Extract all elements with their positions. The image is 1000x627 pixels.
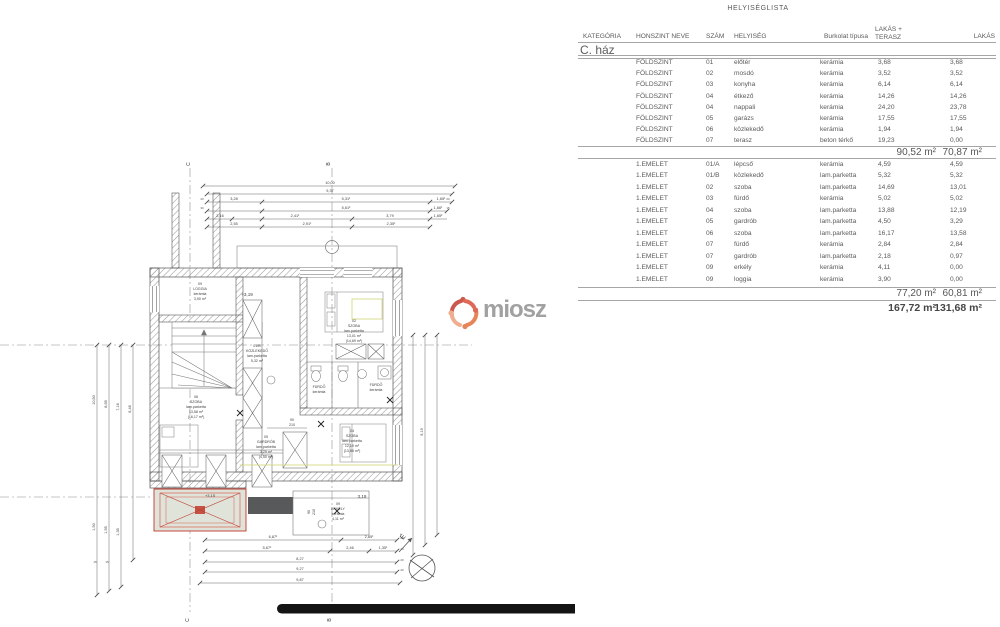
svg-text:10,00: 10,00	[325, 181, 335, 185]
table-cell: lam.parketta	[820, 253, 856, 260]
table-cell: kerámia	[820, 81, 843, 88]
svg-text:1,65²: 1,65²	[434, 214, 443, 218]
table-cell: gardrób	[734, 253, 757, 260]
loggia-highlight	[154, 489, 246, 531]
table-cell: 03	[706, 81, 713, 88]
table-cell: loggia	[734, 276, 752, 283]
svg-text:12,19 m²: 12,19 m²	[345, 444, 360, 448]
table-cell: 01/A	[706, 161, 720, 168]
header-lakas-terasz: LAKÁS + TERASZ	[875, 26, 915, 41]
table-cell: 17,55	[878, 115, 895, 122]
table-cell: lam.parketta	[820, 207, 856, 214]
table-cell: 06	[706, 126, 713, 133]
table-row: FÖLDSZINT05garázskerámia17,5517,55	[578, 114, 996, 125]
table-row: 1.EMELET05gardróblam.parketta4,503,29	[578, 217, 996, 229]
table-cell: lam.parketta	[820, 218, 856, 225]
table-cell: erkély	[734, 264, 752, 271]
svg-text:6,46: 6,46	[128, 405, 132, 412]
grid-label-b-bottom: B	[327, 618, 333, 622]
table-cell: 3,68	[950, 59, 963, 66]
svg-text:7,16: 7,16	[116, 403, 120, 410]
table-cell: előtér	[734, 59, 751, 66]
table-cell: 04	[706, 93, 713, 100]
table-row: FÖLDSZINT03konyhakerámia6,146,14	[578, 80, 996, 91]
foldszint-subtotal: 90,52 m² 70,87 m²	[578, 147, 996, 159]
table-cell: 1.EMELET	[636, 195, 668, 202]
table-cell: kerámia	[820, 241, 843, 248]
table-row: 1.EMELET02szobalam.parketta14,6913,01	[578, 183, 996, 195]
table-cell: kerámia	[820, 104, 843, 111]
room-label-szoba-02: 02 SZOBA lam.parketta 13,01 m² (14,69 m²…	[344, 319, 364, 343]
table-cell: 1.EMELET	[636, 264, 668, 271]
table-cell: lépcső	[734, 161, 753, 168]
table-cell: FÖLDSZINT	[636, 126, 673, 133]
header-kategoria: KATEGÓRIA	[583, 33, 621, 40]
table-cell: 4,11	[878, 264, 890, 271]
table-cell: közlekedő	[734, 126, 764, 133]
table-cell: 3,29	[950, 218, 963, 225]
svg-text:20: 20	[200, 197, 204, 201]
table-cell: FÖLDSZINT	[636, 81, 673, 88]
table-row: FÖLDSZINT02mosdókerámia3,523,52	[578, 69, 996, 80]
table-cell: 0,00	[950, 276, 963, 283]
svg-text:9,37: 9,37	[326, 189, 333, 193]
table-cell: 3,52	[878, 70, 891, 77]
table-cell: 01	[706, 59, 713, 66]
table-cell: 12,19	[950, 207, 967, 214]
svg-text:8,65: 8,65	[104, 400, 108, 407]
svg-text:1,65¹: 1,65¹	[437, 197, 446, 201]
svg-text:10,50: 10,50	[92, 395, 96, 405]
rule	[578, 55, 996, 56]
svg-text:lam.parketta: lam.parketta	[247, 354, 267, 358]
roof-outline	[237, 246, 397, 268]
header-lakas: LAKÁS	[952, 33, 995, 40]
north-label: É	[398, 532, 408, 542]
svg-text:04: 04	[350, 429, 354, 433]
svg-text:15: 15	[93, 560, 97, 564]
table-cell: szoba	[734, 207, 752, 214]
table-cell: gardrób	[734, 218, 757, 225]
grid-label-c-bottom: C	[185, 618, 191, 622]
svg-text:9,27: 9,27	[296, 567, 303, 571]
table-cell: 2,18	[878, 253, 891, 260]
table-cell: 3,52	[950, 70, 963, 77]
table-cell: 0,00	[950, 137, 963, 144]
level-mark-2: +3,15	[205, 493, 216, 498]
room-list-table: HELYISÉGLISTA KATEGÓRIA HONSZINT NEVE SZ…	[578, 0, 996, 627]
svg-text:20: 20	[400, 558, 404, 562]
table-cell: 14,69	[878, 184, 895, 191]
table-cell: FÖLDSZINT	[636, 70, 673, 77]
table-cell: kerámia	[820, 276, 843, 283]
table-cell: FÖLDSZINT	[636, 104, 673, 111]
svg-text:(4,50 m²): (4,50 m²)	[259, 455, 274, 459]
table-cell: 4,50	[878, 218, 891, 225]
table-cell: kerámia	[820, 126, 843, 133]
svg-text:3,28: 3,28	[230, 197, 237, 201]
subtotal-lakas-terasz: 90,52 m²	[818, 147, 936, 158]
table-row: 1.EMELET09erkélykerámia4,110,00	[578, 263, 996, 275]
miosz-logo-text: miosz	[483, 296, 546, 324]
table-row: 1.EMELET04szobalam.parketta13,8812,19	[578, 206, 996, 218]
table-cell: kerámia	[820, 70, 843, 77]
room-label-furdo-03: FÜRDŐ kerámia	[313, 384, 326, 394]
svg-text:(13,88 m²): (13,88 m²)	[344, 449, 361, 453]
table-cell: 04	[706, 207, 713, 214]
table-cell: 05	[706, 218, 713, 225]
room-label-szoba-04: 04 SZOBA lam.parketta 12,19 m² (13,88 m²…	[342, 429, 362, 453]
svg-text:FÜRDŐ: FÜRDŐ	[370, 382, 383, 387]
table-cell: kerámia	[820, 93, 843, 100]
svg-text:(16,17 m²): (16,17 m²)	[188, 415, 205, 419]
svg-text:kerámia: kerámia	[194, 292, 207, 296]
table-cell: 24,20	[878, 104, 895, 111]
table-cell: 04	[706, 104, 713, 111]
svg-text:01/B: 01/B	[253, 344, 261, 348]
table-cell: 09	[706, 276, 713, 283]
subtotal-lakas-terasz: 77,20 m²	[818, 288, 936, 299]
room-label-kozlekedo: 01/B KÖZLEKEDŐ lam.parketta 5,32 m²	[246, 344, 268, 363]
table-cell: szoba	[734, 184, 752, 191]
table-cell: 16,17	[878, 230, 895, 237]
door-size-width: 90	[290, 418, 294, 422]
svg-text:SZOBA: SZOBA	[346, 434, 359, 438]
door-size-height: 210	[289, 423, 295, 427]
svg-text:3,90 m²: 3,90 m²	[194, 297, 207, 301]
svg-text:LOGGIA: LOGGIA	[193, 287, 207, 291]
svg-text:6,87¹: 6,87¹	[269, 535, 278, 539]
total-lakas: 131,68 m²	[920, 302, 982, 314]
svg-text:lam.parketta: lam.parketta	[186, 405, 206, 409]
svg-text:15: 15	[105, 560, 109, 564]
svg-text:kerámia: kerámia	[313, 390, 326, 394]
svg-text:5,67¹: 5,67¹	[263, 546, 272, 550]
table-cell: 1.EMELET	[636, 253, 668, 260]
table-cell: 1.EMELET	[636, 218, 668, 225]
table-row: FÖLDSZINT01előtérkerámia3,683,68	[578, 58, 996, 69]
table-cell: FÖLDSZINT	[636, 137, 673, 144]
svg-text:5,61²: 5,61²	[342, 206, 351, 210]
table-row: 1.EMELET06szobalam.parketta16,1713,58	[578, 229, 996, 241]
svg-text:lam.parketta: lam.parketta	[256, 445, 276, 449]
table-row: 1.EMELET01/Alépcsőkerámia4,594,59	[578, 160, 996, 172]
stairs	[172, 322, 236, 388]
table-cell: 3,90	[878, 276, 891, 283]
svg-text:KÖZLEKEDŐ: KÖZLEKEDŐ	[246, 348, 268, 353]
svg-text:lam.parketta: lam.parketta	[344, 329, 364, 333]
emelet-rows: 1.EMELET01/Alépcsőkerámia4,594,591.EMELE…	[578, 160, 996, 287]
grid-label-c-top: C	[186, 162, 192, 166]
table-cell: FÖLDSZINT	[636, 115, 673, 122]
svg-text:1,66¹: 1,66¹	[434, 206, 443, 210]
table-cell: 5,02	[878, 195, 891, 202]
table-row: FÖLDSZINT04étkezőkerámia14,2614,26	[578, 92, 996, 103]
header-burkolat: Burkolat típusa	[808, 33, 868, 40]
table-cell: 2,84	[878, 241, 891, 248]
svg-text:1,50: 1,50	[92, 523, 96, 530]
table-cell: 13,88	[878, 207, 895, 214]
header-szam: SZÁM	[706, 33, 724, 40]
table-cell: 5,32	[878, 172, 891, 179]
svg-text:05: 05	[264, 435, 268, 439]
table-cell: 23,78	[950, 104, 967, 111]
total-lakas-terasz: 167,72 m²	[818, 302, 936, 314]
table-cell: beton térkő	[820, 137, 853, 144]
svg-text:GARDRÓB: GARDRÓB	[257, 439, 276, 444]
level-mark-3: 3,19	[358, 494, 367, 499]
svg-text:09: 09	[336, 502, 340, 506]
table-cell: 14,26	[950, 93, 967, 100]
table-cell: lam.parketta	[820, 230, 856, 237]
svg-text:ERKÉLY: ERKÉLY	[331, 506, 346, 511]
svg-text:2,41¹: 2,41¹	[291, 214, 300, 218]
room-label-szoba-06: 06 SZOBA lam.parketta 13,58 m² (16,17 m²…	[186, 395, 206, 419]
wall-strips	[172, 193, 220, 268]
svg-text:lam.parketta: lam.parketta	[342, 439, 362, 443]
svg-text:30: 30	[200, 206, 204, 210]
table-cell: 13,58	[950, 230, 967, 237]
table-cell: 1.EMELET	[636, 241, 668, 248]
svg-text:1,35¹: 1,35¹	[379, 546, 388, 550]
table-cell: 0,97	[950, 253, 963, 260]
table-cell: 07	[706, 241, 713, 248]
table-cell: fürdő	[734, 195, 749, 202]
table-cell: 17,55	[950, 115, 967, 122]
room-label-furdo-07: FÜRDŐ kerámia	[370, 382, 383, 392]
gray-block	[248, 497, 293, 514]
table-cell: 1,94	[878, 126, 891, 133]
miosz-logo: miosz	[446, 294, 576, 334]
table-cell: kerámia	[820, 115, 843, 122]
table-cell: 07	[706, 137, 713, 144]
level-mark-1: +3,19	[241, 292, 253, 297]
table-cell: 01/B	[706, 172, 720, 179]
table-cell: 1.EMELET	[636, 184, 668, 191]
table-cell: lam.parketta	[820, 184, 856, 191]
door-size-width-2: 90	[307, 510, 311, 514]
subtotal-lakas: 70,87 m²	[920, 147, 982, 158]
svg-text:20: 20	[446, 197, 450, 201]
table-cell: FÖLDSZINT	[636, 59, 673, 66]
rule	[578, 300, 996, 301]
table-cell: 19,23	[878, 137, 895, 144]
table-cell: 07	[706, 253, 713, 260]
compass-rose-icon	[409, 555, 435, 581]
table-cell: garázs	[734, 115, 754, 122]
table-row: 1.EMELET07gardróblam.parketta2,180,97	[578, 252, 996, 264]
table-cell: kerámia	[820, 264, 843, 271]
table-title: HELYISÉGLISTA	[578, 5, 938, 12]
room-label-erkely: 09 ERKÉLY kerámia 4,11 m²	[331, 502, 346, 521]
svg-text:15: 15	[446, 206, 450, 210]
subtotal-lakas: 60,81 m²	[920, 288, 982, 299]
svg-text:SZOBA: SZOBA	[348, 324, 361, 328]
grid-label-b-top: B	[326, 162, 332, 166]
svg-text:kerámia: kerámia	[332, 512, 345, 516]
svg-text:2,55: 2,55	[230, 222, 237, 226]
emelet-subtotal: 77,20 m² 60,81 m²	[578, 288, 996, 300]
table-cell: 3,68	[878, 59, 891, 66]
table-cell: kerámia	[820, 195, 843, 202]
table-row: FÖLDSZINT04nappalikerámia24,2023,78	[578, 103, 996, 114]
svg-text:3,29 m²: 3,29 m²	[260, 450, 273, 454]
table-cell: FÖLDSZINT	[636, 93, 673, 100]
table-cell: 4,59	[950, 161, 963, 168]
svg-text:5,31¹: 5,31¹	[342, 197, 351, 201]
svg-text:(14,69 m²): (14,69 m²)	[346, 339, 363, 343]
room-label-gardrob-05: 05 GARDRÓB lam.parketta 3,29 m² (4,50 m²…	[256, 435, 276, 459]
table-cell: 1.EMELET	[636, 276, 668, 283]
svg-text:2,85¹: 2,85¹	[365, 535, 374, 539]
svg-text:2,91¹: 2,91¹	[303, 222, 312, 226]
table-cell: 02	[706, 184, 713, 191]
plan-sheet: C B C B	[0, 0, 1000, 627]
door-size-height-2: 210	[312, 509, 316, 515]
room-label-loggia: 09 LOGGIA kerámia 3,90 m²	[193, 282, 207, 301]
table-cell: 5,02	[950, 195, 963, 202]
rule	[578, 42, 996, 43]
foldszint-rows: FÖLDSZINT01előtérkerámia3,683,68FÖLDSZIN…	[578, 58, 996, 148]
table-cell: fürdő	[734, 241, 749, 248]
svg-text:2,46: 2,46	[346, 546, 353, 550]
table-cell: 6,14	[950, 81, 963, 88]
svg-text:2,16: 2,16	[216, 214, 223, 218]
svg-text:FÜRDŐ: FÜRDŐ	[313, 384, 326, 389]
table-cell: 2,84	[950, 241, 963, 248]
bath-fixtures	[267, 366, 391, 384]
table-cell: kerámia	[820, 161, 843, 168]
miosz-logo-icon	[446, 294, 482, 332]
table-cell: mosdó	[734, 70, 754, 77]
table-cell: közlekedő	[734, 172, 764, 179]
table-cell: 03	[706, 195, 713, 202]
table-row: 1.EMELET07fürdőkerámia2,842,84	[578, 240, 996, 252]
table-cell: 14,26	[878, 93, 895, 100]
svg-text:13,01 m²: 13,01 m²	[347, 334, 362, 338]
table-cell: étkező	[734, 93, 753, 100]
svg-text:8,27: 8,27	[296, 557, 303, 561]
svg-text:5,32 m²: 5,32 m²	[251, 359, 264, 363]
table-cell: szoba	[734, 230, 752, 237]
table-cell: 05	[706, 115, 713, 122]
svg-text:9,19: 9,19	[420, 428, 424, 435]
svg-text:9,87: 9,87	[296, 578, 303, 582]
table-cell: 06	[706, 230, 713, 237]
table-cell: 13,01	[950, 184, 967, 191]
table-cell: 1,94	[950, 126, 963, 133]
table-cell: nappali	[734, 104, 755, 111]
svg-text:13,58 m²: 13,58 m²	[189, 410, 204, 414]
svg-text:1,55: 1,55	[104, 526, 108, 533]
table-cell: 09	[706, 264, 713, 271]
table-cell: 1.EMELET	[636, 172, 668, 179]
table-row: FÖLDSZINT06közlekedőkerámia1,941,94	[578, 125, 996, 136]
table-row: 1.EMELET09loggiakerámia3,900,00	[578, 275, 996, 287]
table-cell: 1.EMELET	[636, 230, 668, 237]
svg-text:1,35: 1,35	[116, 528, 120, 535]
svg-text:SZOBA: SZOBA	[190, 400, 203, 404]
svg-text:4,11 m²: 4,11 m²	[332, 517, 345, 521]
table-cell: 1.EMELET	[636, 207, 668, 214]
table-cell: 0,00	[950, 264, 963, 271]
table-row: 1.EMELET03fürdőkerámia5,025,02	[578, 194, 996, 206]
header-helyiseg: HELYISÉG	[734, 33, 767, 40]
table-cell: lam.parketta	[820, 172, 856, 179]
svg-text:kerámia: kerámia	[370, 388, 383, 392]
svg-text:02: 02	[352, 319, 356, 323]
table-cell: konyha	[734, 81, 755, 88]
table-cell: 5,32	[950, 172, 963, 179]
grand-total: 167,72 m² 131,68 m²	[578, 302, 996, 314]
table-cell: 6,14	[878, 81, 891, 88]
table-cell: terasz	[734, 137, 752, 144]
svg-text:09: 09	[198, 282, 202, 286]
svg-text:3,79: 3,79	[386, 214, 393, 218]
svg-text:20: 20	[400, 568, 404, 572]
table-row: 1.EMELET01/Bközlekedőlam.parketta5,325,3…	[578, 171, 996, 183]
svg-text:2,35¹: 2,35¹	[387, 222, 396, 226]
redaction-bar	[277, 604, 575, 614]
table-cell: kerámia	[820, 59, 843, 66]
svg-text:06: 06	[194, 395, 198, 399]
table-cell: 1.EMELET	[636, 161, 668, 168]
header-honszint: HONSZINT NEVE	[636, 33, 689, 40]
table-cell: 02	[706, 70, 713, 77]
table-cell: 4,59	[878, 161, 891, 168]
